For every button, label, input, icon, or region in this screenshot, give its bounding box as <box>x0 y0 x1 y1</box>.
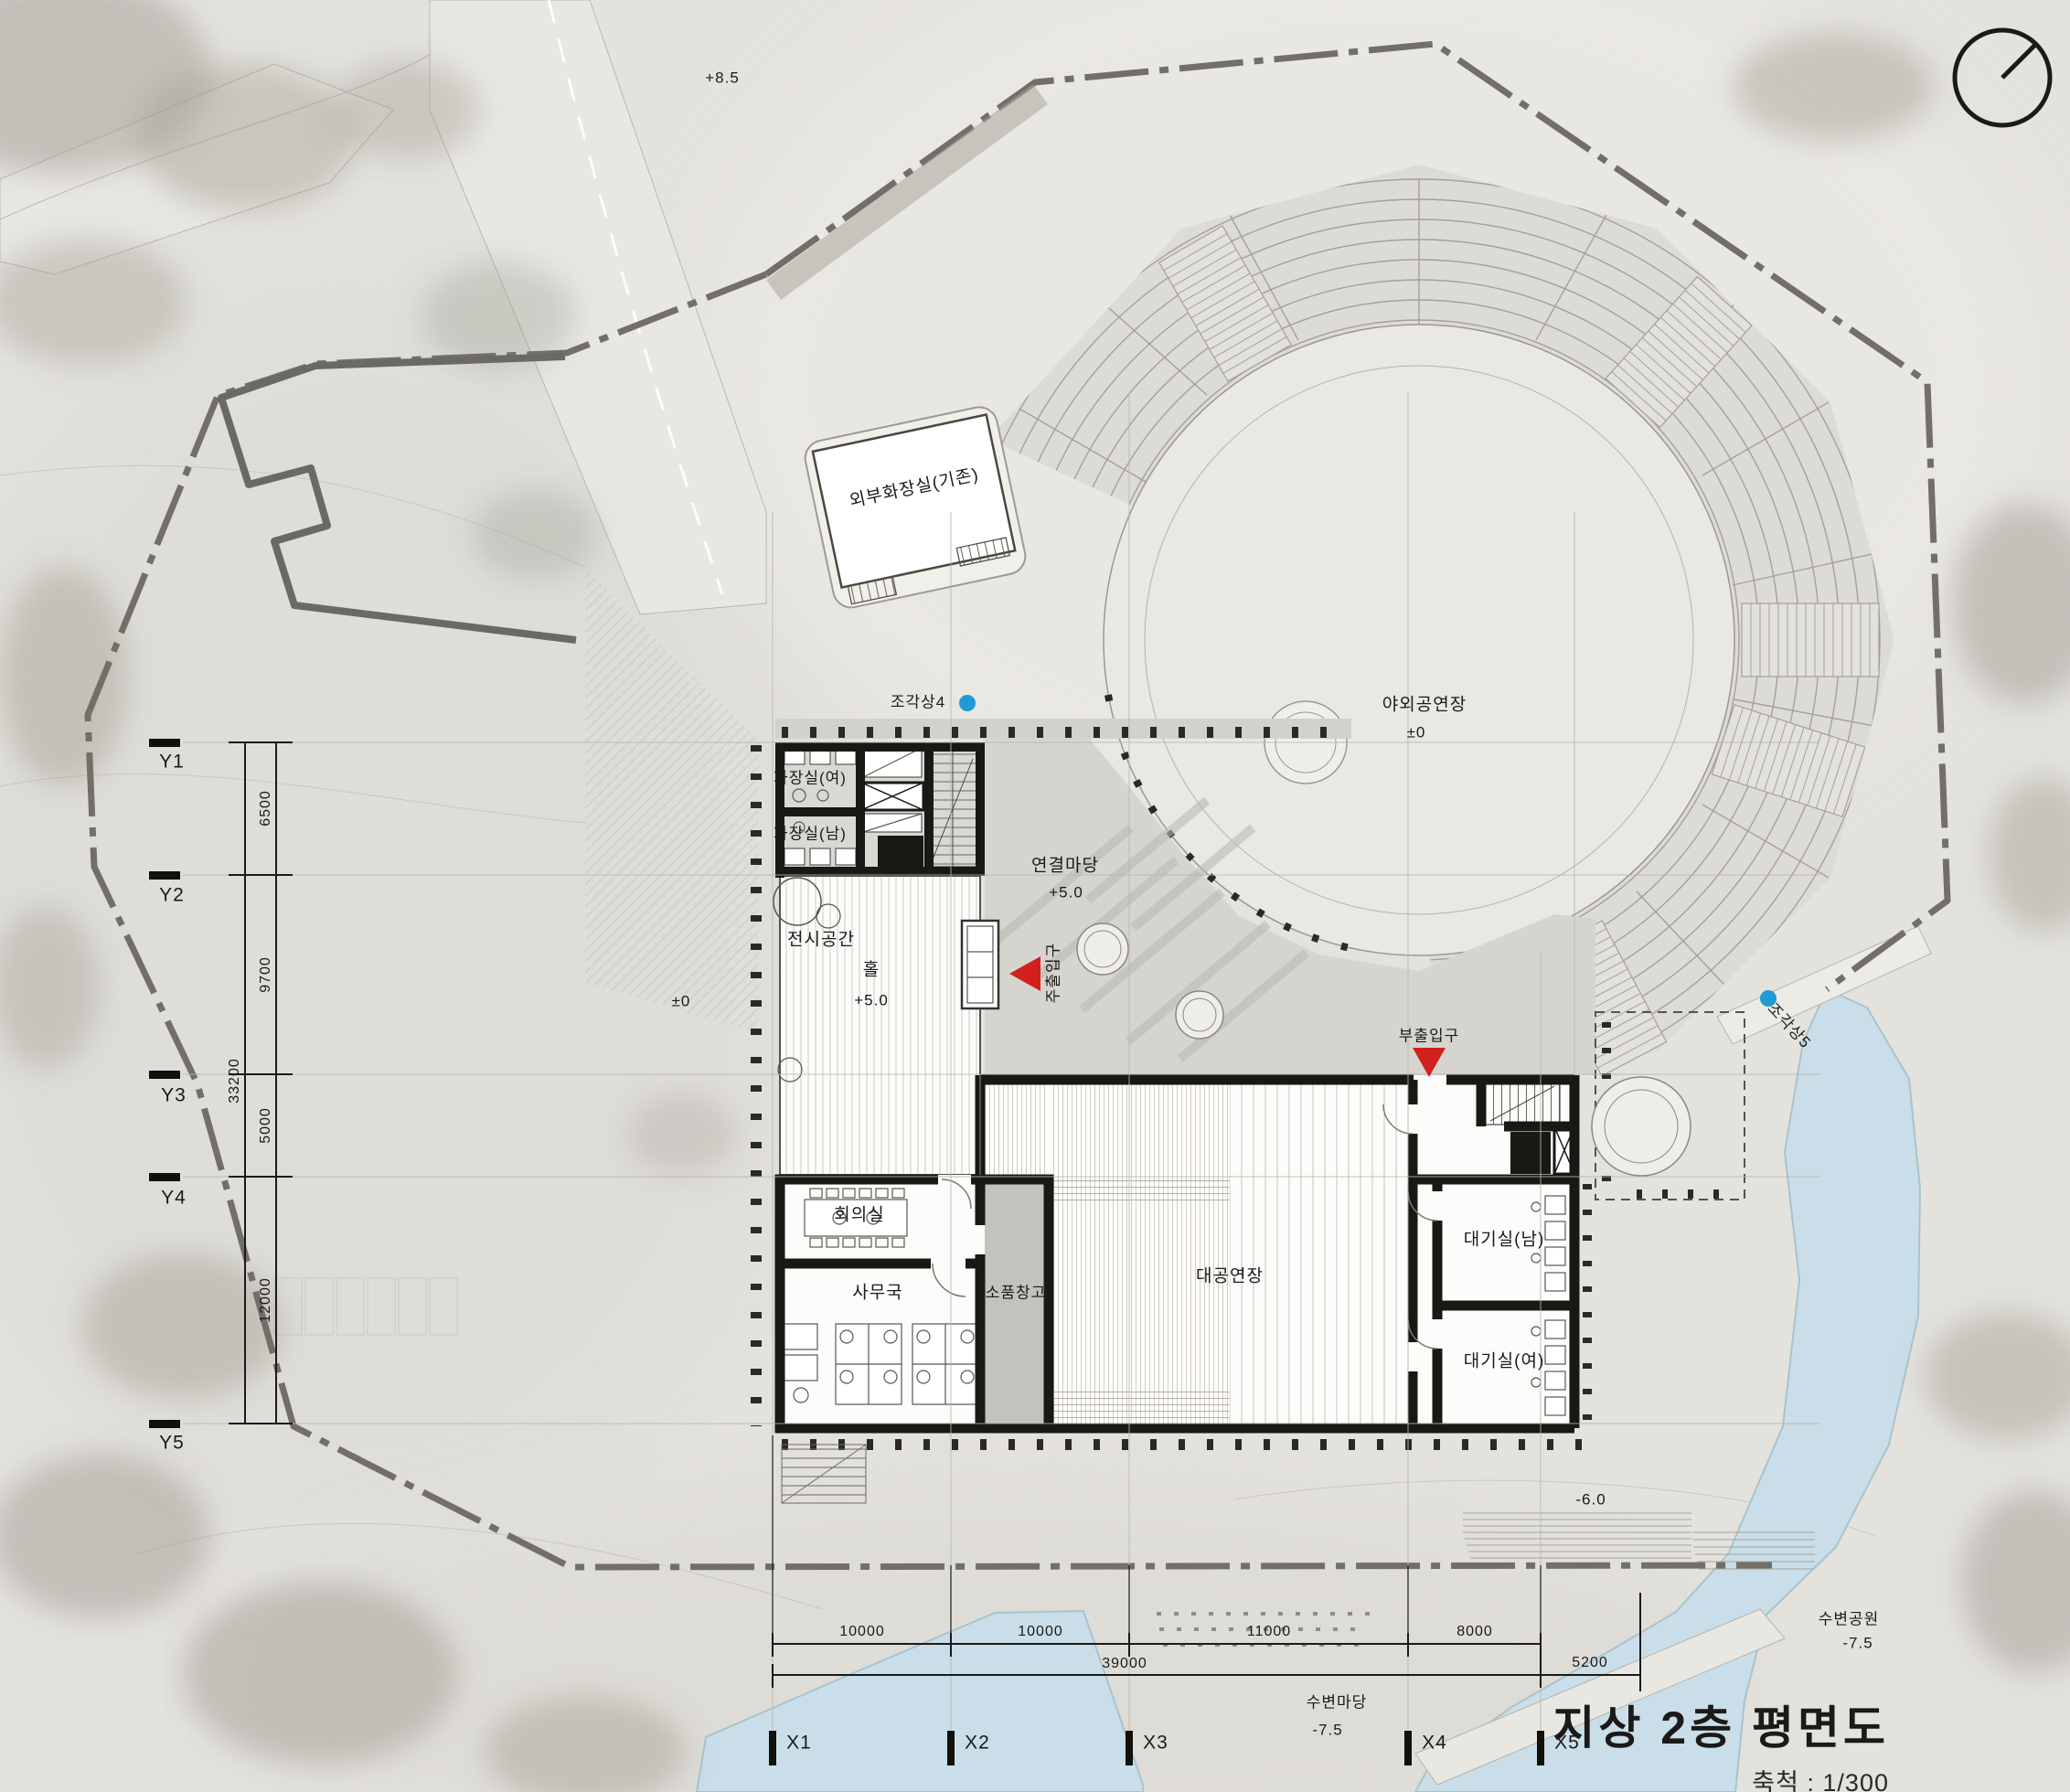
page-title: 지상 2층 평면도 <box>1545 1691 1889 1757</box>
level-label-site-west: ±0 <box>672 994 691 1009</box>
level-label-waterside-park: -7.5 <box>1842 1636 1873 1651</box>
level-label-stage-rear: -6.0 <box>1575 1492 1606 1508</box>
grid-label-x4: X4 <box>1422 1733 1447 1753</box>
sculpture4-dot-icon <box>959 695 976 711</box>
grid-label-x1: X1 <box>786 1733 812 1753</box>
entrance-label-main: 주출입구 <box>1046 943 1062 1004</box>
dim-v-5000: 5000 <box>259 1107 273 1144</box>
level-label-hill: +8.5 <box>705 70 740 86</box>
dim-h-right: 5200 <box>1572 1656 1608 1670</box>
floor-plan-sheet: +8.5 외부화장실(기존) 조각상4 야외공연장 ±0 화장실(여) 화장실(… <box>0 0 2070 1792</box>
grid-label-x3: X3 <box>1143 1733 1168 1753</box>
plan-linework <box>0 0 2070 1792</box>
grid-label-x2: X2 <box>965 1733 990 1753</box>
room-label-toilet-m: 화장실(남) <box>774 827 847 842</box>
room-label-waiting-m: 대기실(남) <box>1464 1232 1545 1249</box>
grid-label-y5: Y5 <box>159 1434 185 1453</box>
room-label-waiting-w: 대기실(여) <box>1464 1353 1545 1371</box>
dim-h-total: 39000 <box>1102 1657 1147 1671</box>
area-label-waterside-park: 수변공원 <box>1819 1612 1880 1627</box>
grid-label-y3: Y3 <box>161 1086 187 1105</box>
room-label-toilet-w: 화장실(여) <box>774 771 847 786</box>
dim-h-1: 10000 <box>839 1625 885 1639</box>
area-label-waterside-yard: 수변마당 <box>1307 1695 1368 1711</box>
room-label-exhibition: 전시공간 <box>787 932 855 949</box>
area-label-connecting-yard: 연결마당 <box>1031 858 1099 875</box>
level-label-connecting-yard: +5.0 <box>1049 885 1083 901</box>
area-label-amphitheater: 야외공연장 <box>1382 697 1467 714</box>
room-label-conference: 회의실 <box>834 1207 884 1224</box>
dim-h-3: 11000 <box>1247 1625 1291 1639</box>
dim-v-9700: 9700 <box>259 956 273 993</box>
level-label-waterside-yard: -7.5 <box>1312 1723 1342 1738</box>
dim-h-2: 10000 <box>1018 1625 1063 1639</box>
dim-h-4: 8000 <box>1456 1625 1493 1639</box>
dim-v-12000: 12000 <box>259 1277 273 1323</box>
dim-v-total: 33200 <box>228 1058 242 1104</box>
entrance-vestibule <box>962 921 998 1008</box>
room-label-main-theater: 대공연장 <box>1196 1268 1264 1285</box>
entrance-label-sub: 부출입구 <box>1399 1029 1460 1044</box>
room-label-office: 사무국 <box>852 1285 902 1302</box>
level-label-amphitheater: ±0 <box>1407 725 1426 741</box>
grid-label-y2: Y2 <box>159 886 185 905</box>
sculpture4-label: 조각상4 <box>891 695 945 710</box>
scale-label: 축척 : 1/300 <box>1545 1763 1889 1792</box>
room-label-hall: 홀 <box>863 962 880 979</box>
room-label-prop-storage: 소품창고 <box>986 1285 1047 1301</box>
grid-label-y4: Y4 <box>161 1189 187 1208</box>
grid-label-y1: Y1 <box>159 752 185 772</box>
level-label-hall: +5.0 <box>854 993 889 1008</box>
dim-v-6500: 6500 <box>259 790 273 827</box>
title-block: 지상 2층 평면도 축척 : 1/300 <box>1545 1691 1889 1792</box>
